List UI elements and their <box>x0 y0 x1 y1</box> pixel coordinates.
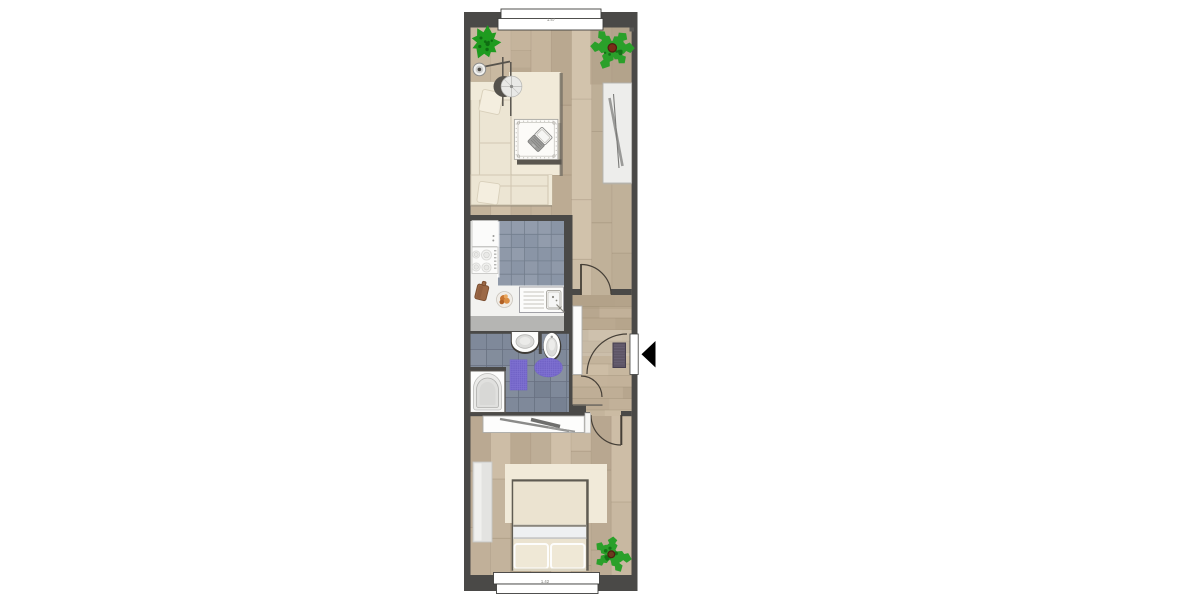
svg-text:1.47: 1.47 <box>547 17 556 22</box>
svg-text:1.42: 1.42 <box>541 579 550 584</box>
